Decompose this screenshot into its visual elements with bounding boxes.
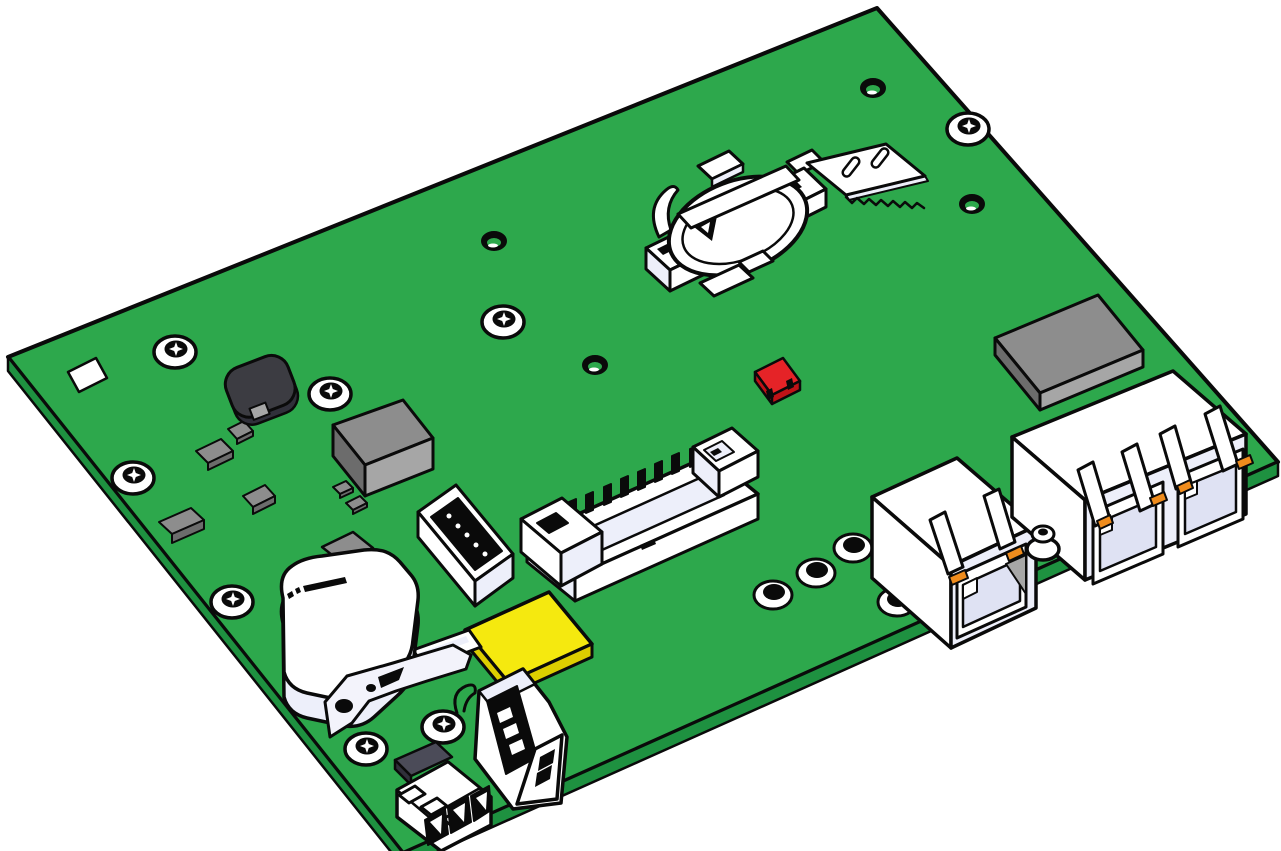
mounting-hole: [345, 733, 387, 765]
pcb-cad-render: [0, 0, 1281, 851]
mounting-hole: [309, 378, 351, 410]
plated-hole: [834, 534, 872, 562]
mounting-hole: [154, 336, 196, 368]
via-hole: [583, 356, 607, 374]
via-hole: [960, 195, 984, 213]
mounting-hole: [422, 711, 464, 743]
via-hole: [861, 79, 885, 97]
plated-hole: [754, 581, 792, 609]
mounting-hole: [947, 113, 989, 145]
bracket-hole: [366, 684, 376, 692]
mounting-hole: [482, 306, 524, 338]
via-hole: [482, 232, 506, 250]
coax-connector: [1027, 526, 1059, 560]
plated-hole: [797, 559, 835, 587]
bracket-hole: [335, 699, 353, 713]
mounting-hole: [211, 586, 253, 618]
mounting-hole: [112, 462, 154, 494]
